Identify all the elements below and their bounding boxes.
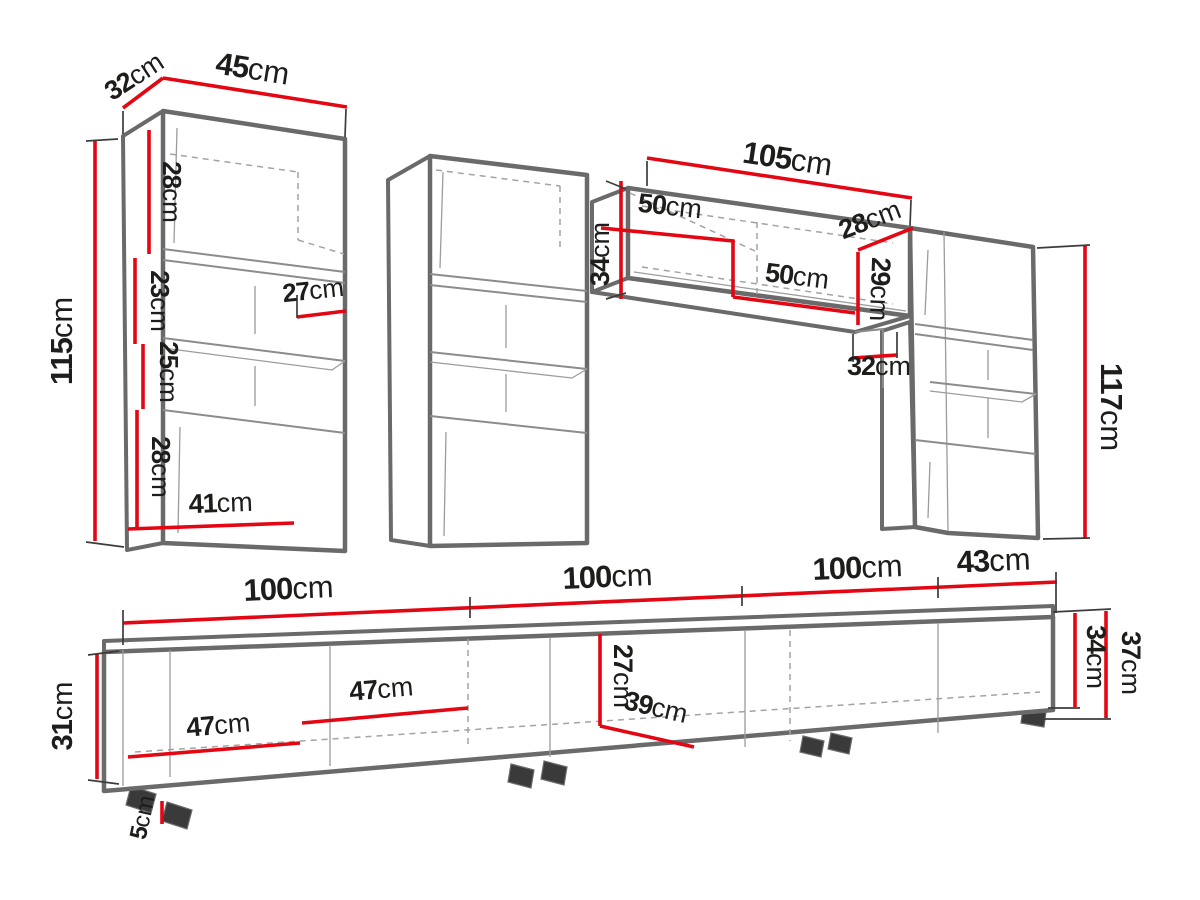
dim-label-stand-compartment1: 47cm [185, 707, 251, 742]
dim-label-stand-end-section: 43cm [956, 541, 1031, 579]
cabinet-front [430, 156, 587, 546]
dim-value: 29 [865, 257, 896, 287]
dim-value: 32 [847, 351, 875, 381]
dim-label-bottom-section-height: 28cm [146, 436, 176, 498]
extension-tick [86, 139, 118, 141]
dim-value: 28 [146, 436, 176, 463]
dim-value: 27 [608, 644, 638, 672]
dim-label-interior-width: 41cm [188, 487, 253, 519]
furniture-dimensions-diagram: 32cm 45cm 115cm 28cm 23cm 25cm 28cm 27cm… [0, 0, 1200, 900]
diagram-canvas: 32cm 45cm 115cm 28cm 23cm 25cm 28cm 27cm… [0, 0, 1200, 900]
extension-tick [1053, 609, 1111, 612]
dim-value: 47 [185, 710, 216, 742]
extension-tick [345, 109, 346, 137]
dim-value: 115 [44, 337, 79, 385]
dim-unit: cm [127, 793, 160, 830]
cabinet-side-panel [388, 156, 430, 546]
dim-label-left-cabinet-height: 115cm [44, 297, 79, 385]
dim-label-stand-section3: 100cm [812, 548, 904, 587]
cabinet-front [163, 111, 345, 551]
extension-tick [1037, 245, 1090, 248]
dim-value: 47 [348, 674, 379, 706]
dim-unit: cm [864, 285, 895, 322]
extension-tick [910, 200, 911, 226]
dim-value: 41 [188, 488, 218, 519]
extension-tick [606, 181, 626, 189]
dim-unit: cm [1094, 410, 1129, 451]
dim-unit: cm [308, 272, 346, 305]
dim-unit: cm [216, 487, 253, 518]
stand-foot [800, 736, 824, 757]
dim-unit: cm [376, 671, 414, 704]
dim-unit: cm [246, 51, 292, 92]
dim-value: 34 [1081, 625, 1111, 654]
dim-label-top-section-height: 28cm [157, 161, 187, 223]
dim-value: 50 [763, 257, 794, 290]
dim-label-shelf-depth: 27cm [281, 272, 345, 308]
dim-value: 117 [1094, 363, 1129, 410]
dim-unit: cm [664, 191, 703, 225]
dim-unit: cm [860, 548, 903, 585]
dim-value: 34 [585, 257, 615, 286]
dim-value: 27 [281, 275, 311, 308]
dim-label-wall-side-clearance: 32cm [847, 351, 911, 381]
extension-tick [1043, 538, 1090, 539]
dim-unit: cm [585, 222, 615, 258]
dim-label-right-cabinet-height: 117cm [1094, 363, 1129, 451]
dim-label-right-total-height: 37cm [1116, 631, 1146, 695]
extension-tick [86, 542, 124, 547]
dim-unit: cm [154, 368, 184, 403]
dim-value: 43 [956, 543, 991, 579]
dim-unit: cm [145, 297, 175, 332]
stand-foot [162, 802, 192, 829]
dim-value: 100 [812, 550, 862, 587]
dim-unit: cm [1116, 659, 1146, 695]
dim-unit: cm [875, 351, 911, 381]
dim-unit: cm [1081, 653, 1111, 689]
dim-value: 37 [1116, 631, 1146, 659]
dim-label-right-interior-height: 34cm [1081, 625, 1111, 689]
dim-label-wall-height: 34cm [585, 222, 615, 286]
dim-value: 100 [562, 559, 612, 596]
dim-label-stand-section1: 100cm [243, 569, 335, 608]
stand-foot [828, 733, 852, 754]
dim-label-stand-section2: 100cm [562, 557, 654, 596]
dim-value: 105 [740, 135, 794, 177]
dim-value: 28 [157, 161, 187, 188]
dim-unit: cm [213, 707, 251, 740]
dim-unit: cm [157, 188, 187, 223]
stand-foot [541, 761, 567, 785]
dim-label-left-cabinet-width: 45cm [213, 46, 291, 92]
dim-value: 100 [243, 571, 293, 608]
dim-unit: cm [988, 541, 1031, 578]
dim-unit: cm [291, 569, 334, 606]
dim-value: 25 [154, 341, 184, 368]
dim-label-wall-interior-height: 29cm [864, 257, 896, 322]
dim-unit: cm [47, 682, 79, 721]
dim-value: 50 [637, 188, 668, 221]
dim-unit: cm [610, 557, 653, 594]
dim-unit: cm [789, 142, 835, 183]
dim-unit: cm [146, 463, 176, 498]
dim-label-lower-shelf-spacing: 25cm [154, 341, 184, 403]
stand-foot [508, 764, 534, 788]
dim-label-upper-shelf-spacing: 23cm [145, 270, 175, 332]
dim-value: 31 [47, 719, 79, 750]
dim-value: 23 [145, 270, 175, 297]
tall-cabinet-middle [388, 156, 587, 546]
dim-label-stand-compartment2: 47cm [348, 671, 414, 706]
dim-unit: cm [791, 261, 830, 295]
dim-label-stand-front-height: 31cm [47, 682, 79, 751]
dim-unit: cm [44, 297, 79, 338]
